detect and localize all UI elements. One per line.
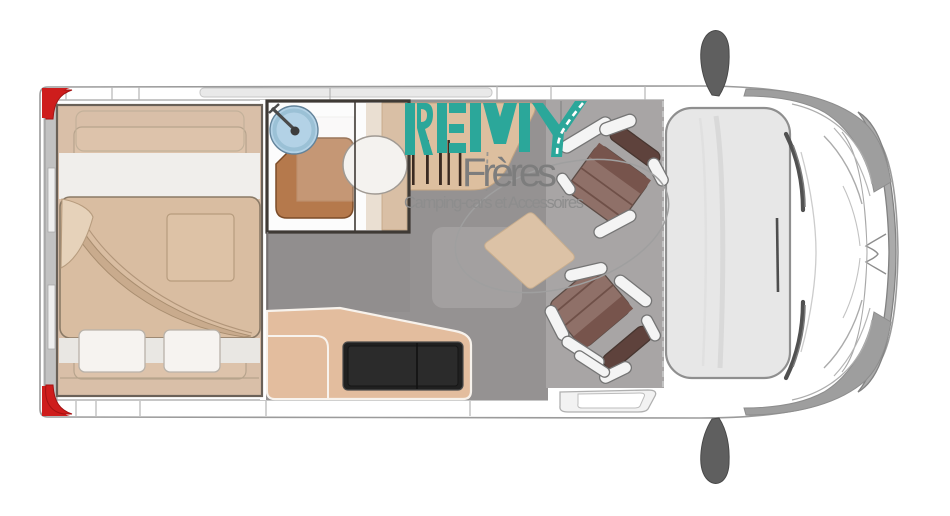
svg-text:Camping-cars et Accessoires: Camping-cars et Accessoires [404,194,584,212]
svg-text:Frères: Frères [462,151,557,195]
